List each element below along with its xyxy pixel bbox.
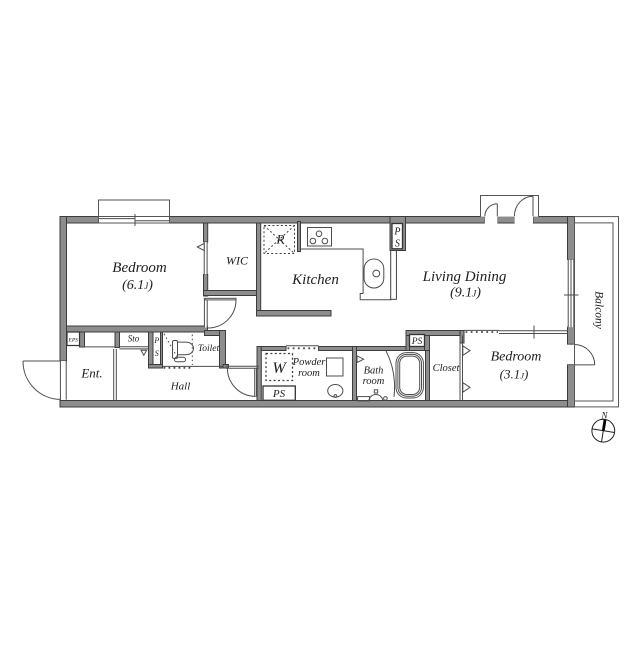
svg-text:N: N bbox=[600, 411, 608, 421]
svg-text:(9.1J): (9.1J) bbox=[450, 286, 481, 301]
svg-text:Bath: Bath bbox=[364, 366, 384, 377]
svg-text:Closet: Closet bbox=[433, 363, 461, 374]
svg-text:Sto: Sto bbox=[128, 334, 140, 344]
svg-text:Hall: Hall bbox=[170, 381, 191, 393]
svg-text:P: P bbox=[393, 227, 400, 238]
svg-text:room: room bbox=[363, 376, 385, 387]
svg-text:Balcony: Balcony bbox=[593, 291, 605, 330]
svg-text:Bedroom: Bedroom bbox=[491, 350, 542, 365]
svg-text:S: S bbox=[155, 349, 159, 358]
svg-text:Living Dining: Living Dining bbox=[422, 269, 507, 285]
svg-text:P: P bbox=[153, 336, 159, 345]
svg-text:Ent.: Ent. bbox=[80, 366, 102, 381]
svg-text:WIC: WIC bbox=[226, 254, 249, 268]
svg-text:Powder: Powder bbox=[292, 357, 327, 368]
svg-text:Bedroom: Bedroom bbox=[112, 260, 167, 276]
svg-text:Toilet: Toilet bbox=[198, 344, 220, 354]
svg-text:Kitchen: Kitchen bbox=[291, 272, 339, 288]
svg-text:W: W bbox=[272, 360, 287, 377]
svg-text:(6.1J): (6.1J) bbox=[122, 278, 153, 293]
svg-text:room: room bbox=[298, 368, 320, 379]
svg-text:(3.1J): (3.1J) bbox=[500, 367, 529, 382]
svg-text:EPS: EPS bbox=[67, 338, 78, 344]
svg-text:R: R bbox=[276, 232, 285, 247]
svg-text:PS: PS bbox=[272, 388, 286, 400]
svg-text:S: S bbox=[395, 239, 400, 250]
svg-text:PS: PS bbox=[411, 337, 423, 347]
